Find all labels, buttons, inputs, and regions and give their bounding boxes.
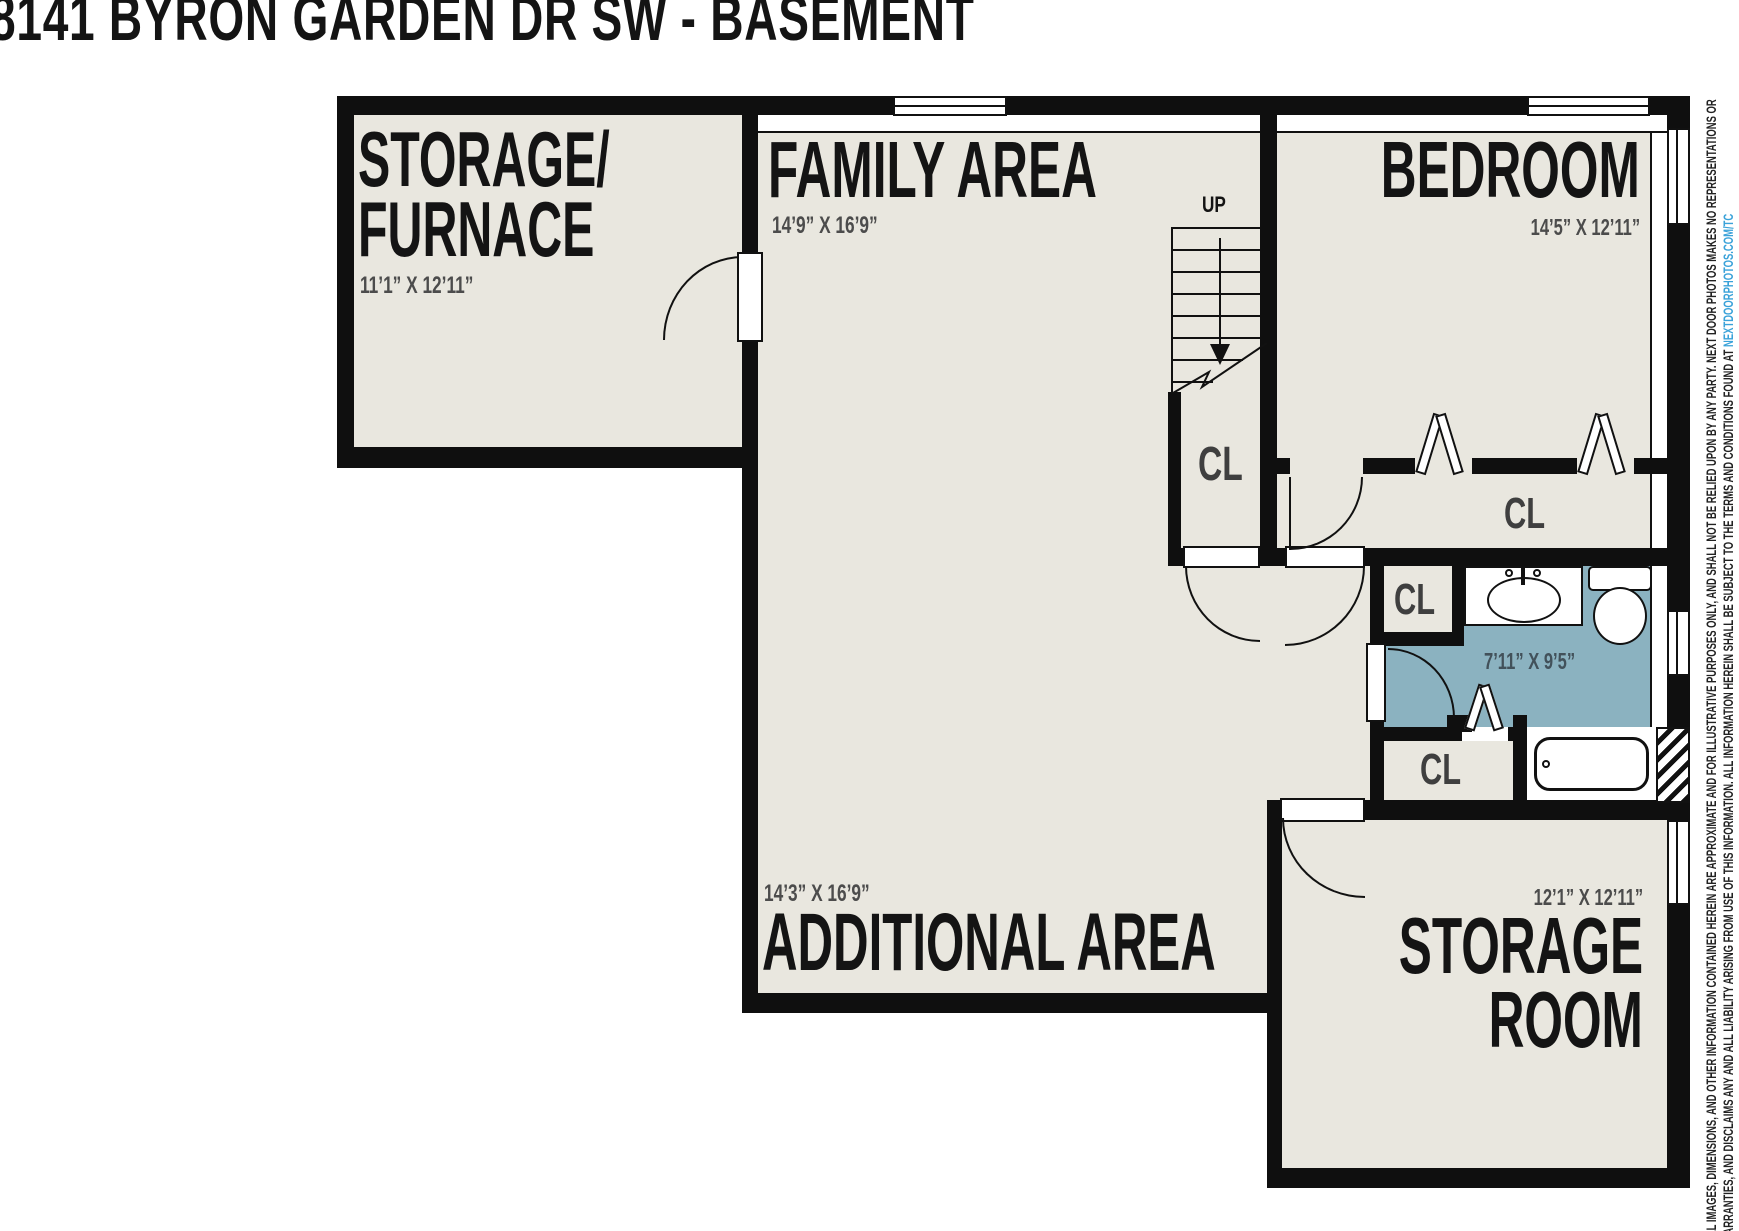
stair-tread — [1173, 315, 1260, 317]
room-label-storage-room: STORAGE ROOM — [1249, 906, 1643, 1060]
wall-bedroom-bottom-seg2 — [1363, 458, 1415, 474]
window-bathroom-right — [1667, 610, 1690, 676]
stair-break-line — [1163, 335, 1273, 400]
stair-tread — [1173, 227, 1260, 229]
room-dim-bathroom: 7’11” X 9’5” — [1484, 650, 1611, 673]
room-label-bedroom: BEDROOM — [1222, 130, 1640, 210]
wall-lower-closet-right — [1513, 715, 1527, 803]
window-bedroom-right — [1667, 128, 1690, 225]
disclaimer-line-2: WARRANTIES, AND DISCLAIMS ANY AND ALL LI… — [1721, 305, 1738, 1231]
terms-link: NEXTDOORPHOTOS.COM/TC — [1721, 214, 1736, 347]
stair-tread — [1173, 249, 1260, 251]
stair-direction-arrow-line — [1219, 238, 1221, 344]
bathtub-icon — [1534, 737, 1649, 791]
wall-center-vertical-lower — [742, 342, 758, 1013]
disclaimer-text: ALL IMAGES, DIMENSIONS, AND OTHER INFORM… — [1704, 305, 1737, 1231]
wall-bedroom-bottom-seg1 — [1277, 458, 1290, 474]
page-title: 8141 BYRON GARDEN DR SW - BASEMENT — [0, 0, 1358, 50]
closet-label-bath: CL — [1394, 578, 1453, 622]
window-storage-room-right — [1667, 820, 1690, 905]
wall-stair-closet-left — [1168, 392, 1181, 566]
floor-plan: 8141 BYRON GARDEN DR SW - BASEMENT — [0, 0, 1739, 1231]
stair-tread — [1173, 271, 1260, 273]
room-dim-bedroom: 14’5” X 12’11” — [1488, 216, 1640, 239]
disclaimer-line-1: ALL IMAGES, DIMENSIONS, AND OTHER INFORM… — [1704, 305, 1721, 1231]
room-dim-storage-furnace: 11’1” X 12’11” — [360, 274, 517, 298]
wall-bedroom-bottom-seg3 — [1472, 458, 1577, 474]
stair-tread — [1173, 293, 1260, 295]
wall-storage-room-bottom — [1267, 1168, 1690, 1188]
bathtub-drain-icon — [1542, 760, 1550, 768]
toilet-bowl-icon — [1593, 587, 1647, 645]
sink-handle-left-icon — [1505, 569, 1513, 577]
wall-storage-furnace-bottom — [337, 447, 758, 468]
stairs-up-label: UP — [1202, 194, 1233, 216]
closet-label-stairs: CL — [1198, 441, 1262, 489]
hatch-strip — [1656, 727, 1690, 803]
wall-bedroom-bottom-seg4 — [1634, 458, 1667, 474]
bathroom-door-leaf — [1366, 643, 1386, 722]
sink-faucet-icon — [1521, 568, 1525, 585]
closet-label-bedroom: CL — [1504, 492, 1563, 536]
wall-additional-bottom — [742, 993, 1282, 1013]
window-family-area — [893, 96, 1007, 116]
sink-handle-right-icon — [1533, 569, 1541, 577]
window-bedroom-top — [1527, 96, 1650, 116]
closet-label-lower: CL — [1420, 748, 1479, 792]
room-label-storage-furnace: STORAGE/ FURNACE — [358, 120, 764, 268]
wall-top-exterior — [337, 96, 1690, 115]
wall-bath-closet-right — [1452, 566, 1464, 646]
stair-closet-door-leaf — [1183, 546, 1260, 568]
room-dim-family-area: 14’9” X 16’9” — [772, 214, 919, 238]
wall-left-exterior — [337, 96, 354, 468]
